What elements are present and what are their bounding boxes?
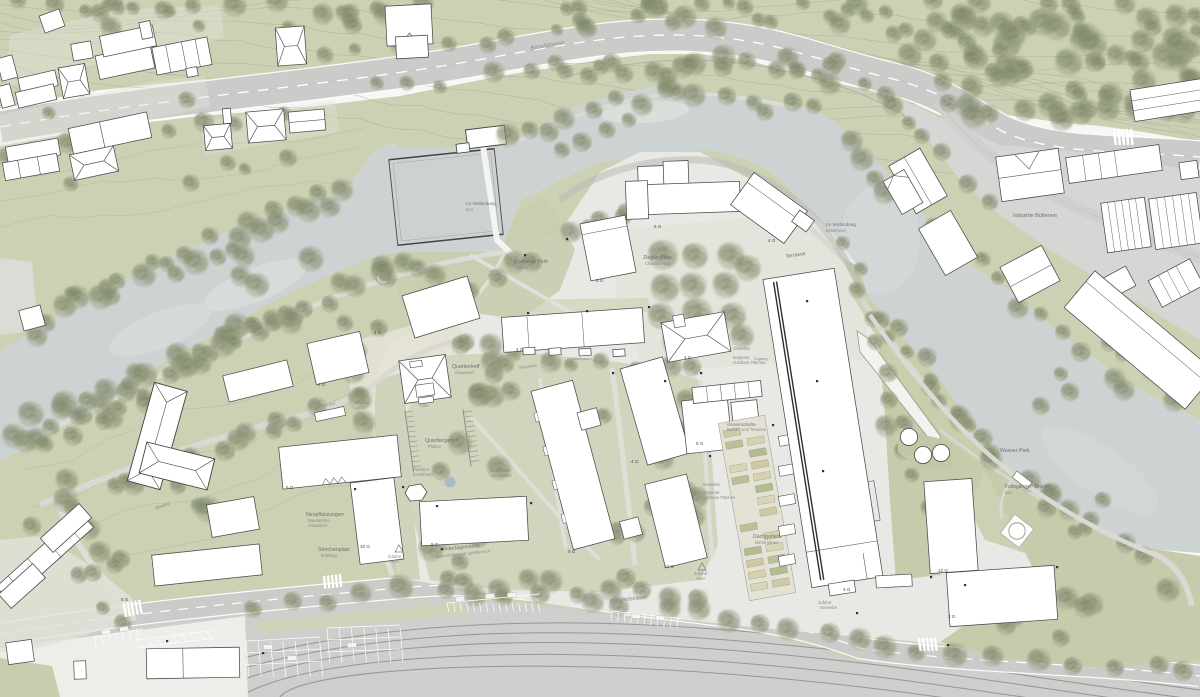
svg-text:4 G: 4 G	[374, 330, 382, 335]
svg-text:bestehend: bestehend	[492, 473, 512, 478]
svg-text:Industrie Büttenen: Industrie Büttenen	[1013, 213, 1057, 219]
svg-text:chaussiert: chaussiert	[455, 370, 475, 375]
svg-text:Chaussierung: Chaussierung	[645, 261, 672, 266]
svg-text:neu: neu	[466, 207, 474, 212]
svg-text:Wasser-Park: Wasser-Park	[1000, 448, 1030, 454]
svg-text:5 G: 5 G	[568, 549, 576, 554]
svg-text:Cafe: Cafe	[420, 403, 430, 408]
svg-text:AEH: AEH	[390, 559, 399, 564]
svg-text:befestigt: befestigt	[321, 553, 338, 558]
svg-text:Zugang: Zugang	[754, 356, 768, 361]
svg-text:AEH: AEH	[356, 405, 364, 410]
svg-text:4 G: 4 G	[318, 382, 326, 387]
svg-text:4 G: 4 G	[843, 587, 851, 592]
svg-text:5 G: 5 G	[654, 224, 662, 229]
svg-text:Platten: Platten	[428, 444, 442, 449]
svg-text:5 G: 5 G	[696, 441, 704, 446]
svg-text:8 G: 8 G	[596, 278, 604, 283]
svg-text:AEH: AEH	[696, 576, 705, 581]
svg-text:LV Verbindung: LV Verbindung	[466, 201, 496, 206]
svg-text:chaussiert: chaussiert	[308, 523, 328, 528]
svg-text:4 G: 4 G	[768, 238, 776, 243]
svg-text:öffentlich: öffentlich	[517, 265, 534, 270]
svg-text:neu: neu	[1005, 490, 1013, 495]
svg-text:Gewerbe: Gewerbe	[733, 346, 751, 351]
svg-text:Mietergärten: Mietergärten	[755, 540, 779, 545]
svg-text:Unterstand: Unterstand	[572, 356, 592, 361]
svg-text:LV Verbindung: LV Verbindung	[826, 222, 856, 227]
svg-text:Gewerbe: Gewerbe	[820, 605, 838, 610]
svg-text:nutzbare Flächen: nutzbare Flächen	[703, 495, 736, 500]
svg-text:5 G: 5 G	[431, 542, 439, 547]
svg-text:bestehend: bestehend	[413, 472, 433, 477]
svg-text:küche - und Terrasse: küche - und Terrasse	[727, 427, 767, 432]
svg-text:10 G: 10 G	[664, 564, 674, 569]
svg-text:4 G: 4 G	[631, 459, 639, 464]
svg-text:5 G: 5 G	[286, 485, 294, 490]
svg-text:12 G: 12 G	[938, 568, 948, 573]
svg-text:5 G: 5 G	[121, 597, 129, 602]
svg-text:bestehend: bestehend	[826, 228, 846, 233]
svg-text:10 G: 10 G	[360, 544, 370, 549]
svg-text:Gewerbe: Gewerbe	[703, 482, 721, 487]
svg-text:4 G: 4 G	[684, 355, 692, 360]
svg-text:2 G: 2 G	[948, 614, 956, 619]
svg-text:4 G: 4 G	[516, 347, 524, 352]
